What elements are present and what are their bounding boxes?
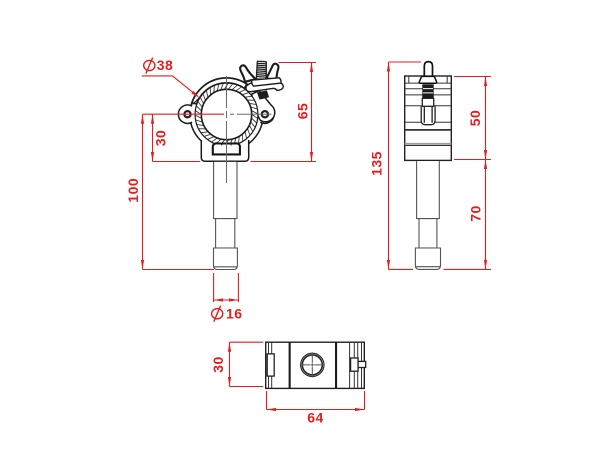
svg-text:100: 100 <box>125 178 141 203</box>
svg-text:30: 30 <box>210 356 226 373</box>
svg-text:16: 16 <box>226 305 243 321</box>
svg-text:38: 38 <box>157 57 174 73</box>
svg-text:30: 30 <box>153 130 169 147</box>
svg-text:65: 65 <box>295 103 311 120</box>
svg-text:50: 50 <box>467 110 483 127</box>
svg-text:70: 70 <box>468 205 484 222</box>
svg-text:64: 64 <box>307 410 324 426</box>
svg-text:135: 135 <box>369 151 385 176</box>
